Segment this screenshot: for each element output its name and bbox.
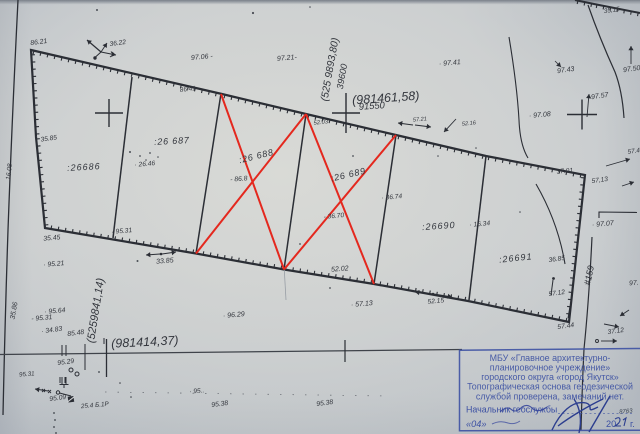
svg-text:- 36.70: - 36.70 bbox=[323, 212, 344, 221]
svg-text:· 57.13: · 57.13 bbox=[351, 300, 373, 309]
svg-text::26691: :26691 bbox=[498, 251, 532, 264]
svg-text:35.85: 35.85 bbox=[40, 134, 58, 143]
svg-text:57.44: 57.44 bbox=[557, 322, 575, 331]
svg-text:57.21: 57.21 bbox=[413, 116, 427, 123]
svg-text:- 86.8: - 86.8 bbox=[230, 175, 248, 184]
svg-text:52.03: 52.03 bbox=[313, 119, 329, 127]
svg-text:97.50: 97.50 bbox=[623, 65, 640, 74]
svg-text:95.38: 95.38 bbox=[316, 399, 334, 408]
svg-text:#159: #159 bbox=[582, 265, 596, 287]
svg-text:· 95.21: · 95.21 bbox=[43, 260, 65, 269]
svg-text:· 16.34: · 16.34 bbox=[469, 220, 490, 229]
svg-text:8763: 8763 bbox=[619, 408, 633, 415]
svg-text:52.15: 52.15 bbox=[427, 297, 444, 305]
svg-text:(981414,37): (981414,37) bbox=[111, 333, 179, 351]
svg-text:57,13: 57,13 bbox=[591, 176, 609, 185]
svg-text:57.4: 57.4 bbox=[627, 147, 640, 156]
svg-text:97.: 97. bbox=[629, 280, 639, 288]
svg-text:95.38: 95.38 bbox=[211, 400, 229, 409]
svg-text:· 36.74: · 36.74 bbox=[381, 193, 402, 202]
svg-text:57.12: 57.12 bbox=[548, 289, 566, 298]
svg-text:· 97.07: · 97.07 bbox=[592, 220, 615, 229]
svg-text:25.4 Б.1Р: 25.4 Б.1Р bbox=[80, 401, 110, 411]
svg-text:97.57: 97.57 bbox=[591, 92, 610, 102]
svg-text:20: 20 bbox=[606, 419, 616, 429]
svg-text:г.: г. bbox=[630, 419, 635, 429]
svg-text:· 26.46: · 26.46 bbox=[134, 160, 155, 169]
svg-text:86.41: 86.41 bbox=[180, 85, 197, 94]
svg-text:39600: 39600 bbox=[335, 62, 349, 90]
svg-text:· 95.64: · 95.64 bbox=[44, 307, 66, 316]
svg-text::26690: :26690 bbox=[422, 220, 456, 232]
svg-text:· 95..: · 95.. bbox=[189, 387, 205, 395]
svg-text:33.85: 33.85 bbox=[156, 257, 174, 266]
svg-text:36.22: 36.22 bbox=[109, 39, 127, 48]
svg-text:86.21: 86.21 bbox=[30, 38, 48, 47]
svg-text::26 689: :26 689 bbox=[330, 166, 367, 184]
svg-text:Топографическая основа геодези: Топографическая основа геодезической bbox=[467, 382, 633, 392]
svg-text:35,15: 35,15 bbox=[603, 6, 620, 15]
svg-text:16.08: 16.08 bbox=[5, 163, 14, 180]
svg-text:«04»: «04» bbox=[466, 419, 486, 429]
svg-text:35.45: 35.45 bbox=[43, 234, 61, 242]
svg-text:37.01: 37.01 bbox=[556, 167, 573, 175]
svg-text:95.29: 95.29 bbox=[57, 358, 75, 367]
svg-text:· 34.83: · 34.83 bbox=[41, 326, 63, 336]
svg-text:планировочное учреждение»: планировочное учреждение» bbox=[490, 362, 611, 372]
svg-text:97.21-: 97.21- bbox=[277, 54, 298, 63]
svg-text:95.09: 95.09 bbox=[49, 394, 67, 403]
svg-text:52.02: 52.02 bbox=[331, 265, 349, 274]
svg-text:городского округа «город Якутс: городского округа «город Якутск» bbox=[481, 372, 619, 382]
svg-text:· 96.29: · 96.29 bbox=[223, 311, 245, 320]
svg-text:97.06 -: 97.06 - bbox=[191, 53, 214, 62]
svg-text:· 97.08: · 97.08 bbox=[529, 111, 551, 120]
svg-text::26 688: :26 688 bbox=[238, 147, 275, 165]
svg-text:· 97.41: · 97.41 bbox=[439, 59, 461, 68]
svg-text:91550: 91550 bbox=[358, 99, 386, 112]
svg-text:85.48: 85.48 bbox=[67, 329, 85, 338]
svg-text:37.12: 37.12 bbox=[607, 327, 625, 336]
svg-text::26 687: :26 687 bbox=[154, 135, 190, 147]
svg-text:97.43: 97.43 bbox=[557, 66, 575, 75]
svg-text:35.86: 35.86 bbox=[10, 301, 20, 320]
svg-text:(5259841,14): (5259841,14) bbox=[85, 277, 107, 344]
svg-text::26686: :26686 bbox=[67, 161, 101, 173]
svg-text:- 95.31: - 95.31 bbox=[111, 227, 132, 236]
svg-text:36.85: 36.85 bbox=[548, 255, 566, 264]
svg-text:52.16: 52.16 bbox=[462, 120, 477, 127]
svg-text:95.31: 95.31 bbox=[19, 370, 35, 378]
